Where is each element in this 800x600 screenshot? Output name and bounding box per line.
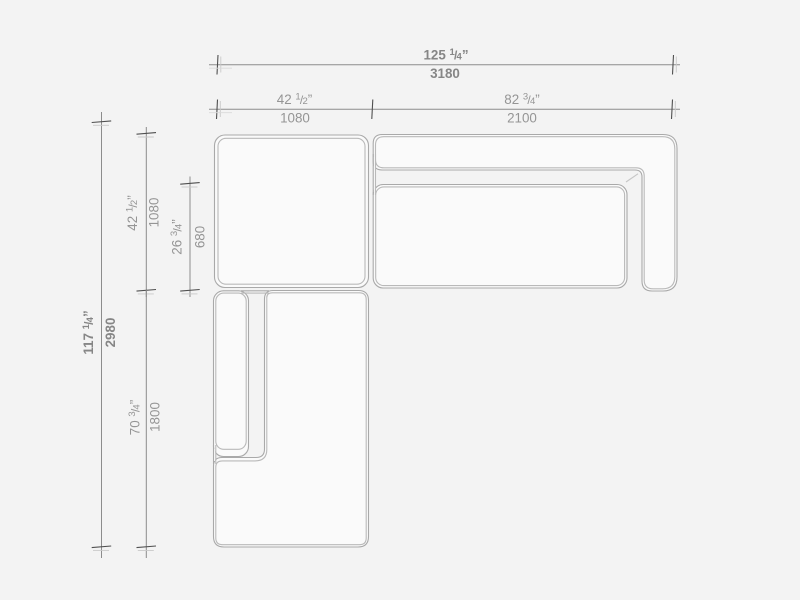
svg-text:1080: 1080 xyxy=(280,111,310,126)
svg-text:70 3/4”: 70 3/4” xyxy=(127,400,142,435)
svg-text:1800: 1800 xyxy=(148,402,163,432)
svg-text:3180: 3180 xyxy=(430,66,460,81)
svg-text:125 1/4”: 125 1/4” xyxy=(423,47,468,62)
svg-text:117 1/4”: 117 1/4” xyxy=(81,310,96,354)
svg-text:680: 680 xyxy=(192,226,207,248)
svg-text:42 1/2”: 42 1/2” xyxy=(277,92,312,107)
svg-text:2980: 2980 xyxy=(103,318,118,348)
svg-text:2100: 2100 xyxy=(507,111,537,126)
svg-text:1080: 1080 xyxy=(147,198,162,228)
svg-text:42 1/2”: 42 1/2” xyxy=(125,195,140,230)
svg-text:26 3/4”: 26 3/4” xyxy=(169,219,184,254)
svg-text:82 3/4”: 82 3/4” xyxy=(504,92,539,107)
